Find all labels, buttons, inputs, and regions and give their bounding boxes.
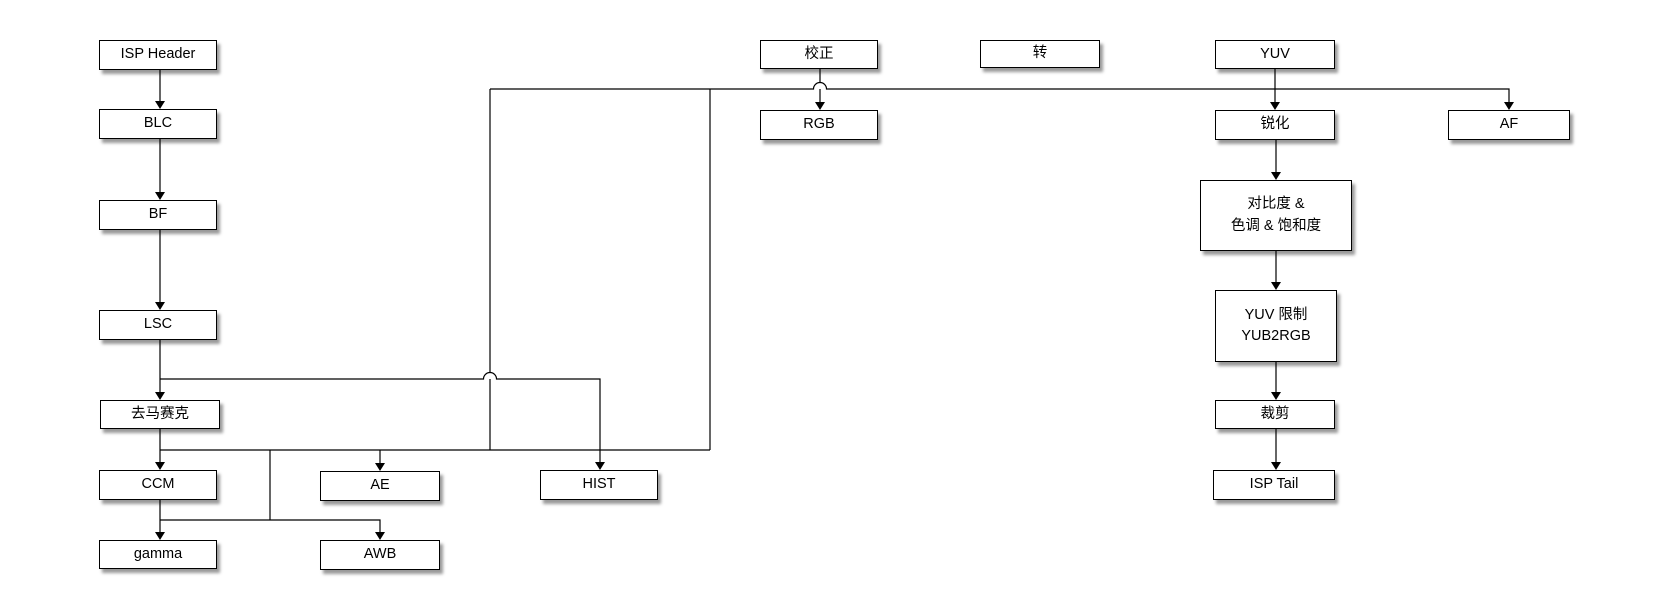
hop-mask-2: [814, 83, 827, 89]
node-demosaic-label: 去马赛克: [131, 404, 189, 425]
node-isp-header: ISP Header: [99, 40, 217, 70]
connector-lines: [0, 0, 1670, 610]
node-awb: AWB: [320, 540, 440, 570]
node-crop: 裁剪: [1215, 400, 1335, 429]
node-lsc: LSC: [99, 310, 217, 340]
node-yuv: YUV: [1215, 40, 1335, 69]
node-correction-label: 校正: [805, 44, 834, 65]
node-contrast-hue-saturation: 对比度 & 色调 & 饱和度: [1200, 180, 1352, 251]
node-bf-label: BF: [149, 204, 168, 225]
node-blc: BLC: [99, 109, 217, 139]
hop-mask-1: [484, 373, 497, 380]
node-blc-label: BLC: [144, 113, 172, 134]
node-ccm-label: CCM: [141, 474, 174, 495]
node-bf: BF: [99, 200, 217, 230]
node-contrast-label-line2: 色调 & 饱和度: [1231, 216, 1321, 237]
node-ae: AE: [320, 471, 440, 501]
node-yuv-limit-label-line2: YUB2RGB: [1241, 326, 1310, 347]
node-ae-label: AE: [370, 475, 389, 496]
node-sharpen-label: 锐化: [1261, 114, 1290, 135]
node-yuv-label: YUV: [1260, 44, 1290, 65]
node-contrast-label-line1: 对比度 &: [1247, 194, 1304, 215]
node-demosaic: 去马赛克: [100, 400, 220, 429]
node-yuv-limit-label-line1: YUV 限制: [1245, 305, 1308, 326]
node-yuv-limit: YUV 限制 YUB2RGB: [1215, 290, 1337, 362]
wire-ccm-awb: [160, 520, 380, 532]
node-crop-label: 裁剪: [1261, 404, 1290, 425]
wire-lsc-hist: [160, 373, 600, 463]
node-gamma: gamma: [99, 540, 217, 569]
node-gamma-label: gamma: [134, 544, 182, 565]
node-hist-label: HIST: [582, 474, 615, 495]
node-isp-tail: ISP Tail: [1213, 470, 1335, 500]
node-af-label: AF: [1500, 114, 1519, 135]
node-correction: 校正: [760, 40, 878, 69]
node-isp-tail-label: ISP Tail: [1250, 474, 1299, 495]
node-sharpen: 锐化: [1215, 110, 1335, 140]
node-hist: HIST: [540, 470, 658, 500]
node-convert-label: 转: [1033, 43, 1048, 64]
node-rgb-label: RGB: [803, 114, 834, 135]
wire-top-bus: [490, 83, 1509, 102]
node-lsc-label: LSC: [144, 314, 172, 335]
node-isp-header-label: ISP Header: [121, 44, 196, 65]
node-awb-label: AWB: [364, 544, 397, 565]
node-convert: 转: [980, 40, 1100, 68]
node-rgb: RGB: [760, 110, 878, 140]
flowchart-canvas: ISP Header BLC BF LSC 去马赛克 CCM gamma AE …: [0, 0, 1670, 610]
node-ccm: CCM: [99, 470, 217, 500]
node-af: AF: [1448, 110, 1570, 140]
